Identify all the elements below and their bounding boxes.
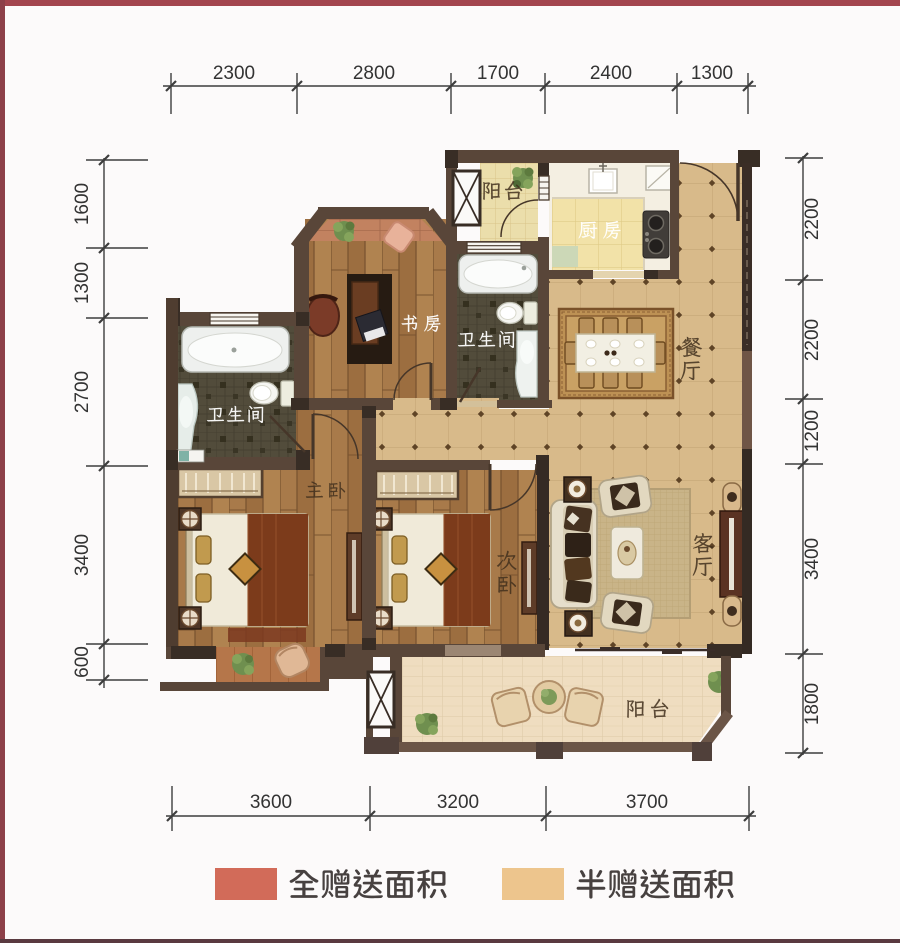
svg-text:2700: 2700 xyxy=(72,371,93,413)
svg-text:3400: 3400 xyxy=(802,538,823,580)
svg-text:1700: 1700 xyxy=(477,63,519,84)
svg-text:3600: 3600 xyxy=(250,792,292,813)
svg-text:2200: 2200 xyxy=(802,319,823,361)
svg-text:1800: 1800 xyxy=(802,683,823,725)
svg-text:2800: 2800 xyxy=(353,63,395,84)
svg-text:3700: 3700 xyxy=(626,792,668,813)
svg-text:2400: 2400 xyxy=(590,63,632,84)
svg-text:2200: 2200 xyxy=(802,198,823,240)
svg-text:2300: 2300 xyxy=(213,63,255,84)
svg-text:1600: 1600 xyxy=(72,183,93,225)
svg-text:1200: 1200 xyxy=(802,410,823,452)
svg-text:600: 600 xyxy=(72,646,93,678)
svg-text:3200: 3200 xyxy=(437,792,479,813)
svg-text:1300: 1300 xyxy=(691,63,733,84)
svg-text:1300: 1300 xyxy=(72,262,93,304)
svg-text:3400: 3400 xyxy=(72,534,93,576)
